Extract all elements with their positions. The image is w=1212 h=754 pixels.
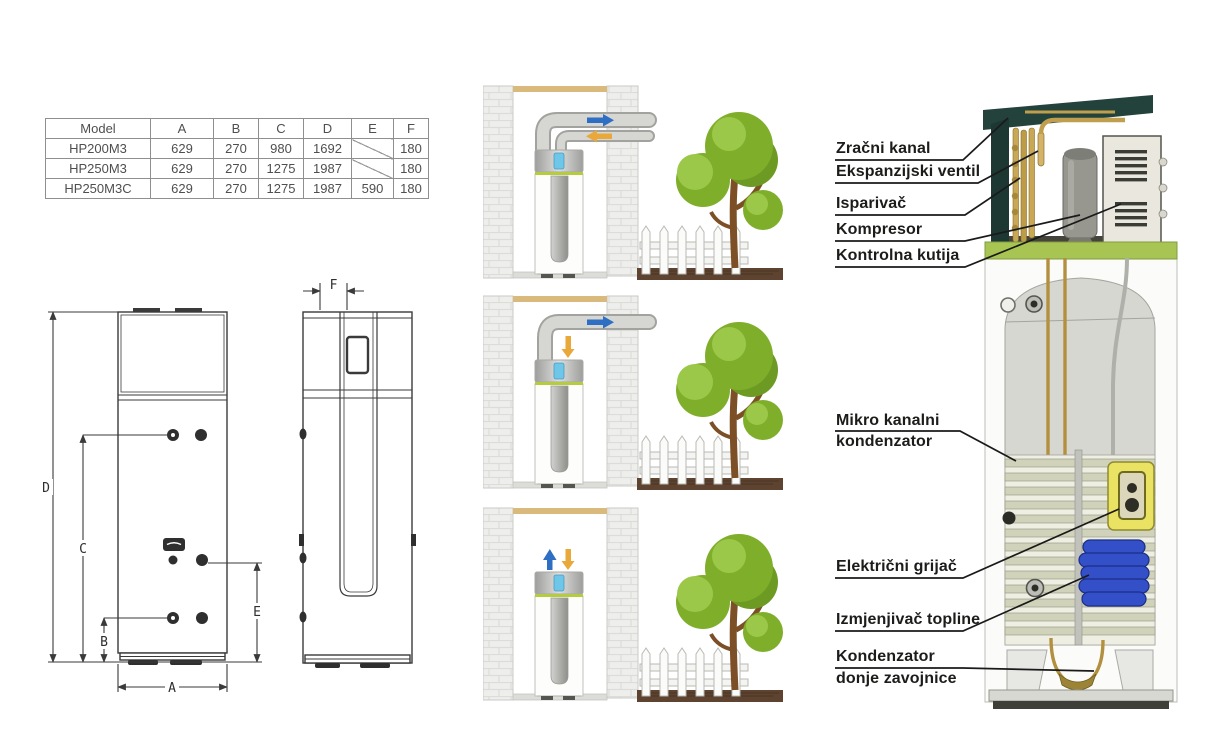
callout-label-heat-exchanger: Izmjenjivač topline — [836, 609, 980, 630]
callout-label-air-duct: Zračni kanal — [836, 138, 931, 159]
callout-leader-lines — [0, 0, 1212, 754]
document-page: Model A B C D E F HP200M3 629 270 980 16… — [0, 0, 1212, 754]
callout-label-micro-channel-condenser: Mikro kanalni kondenzator — [836, 410, 940, 452]
callout-label-electric-heater: Električni grijač — [836, 556, 957, 577]
callout-label-control-box: Kontrolna kutija — [836, 245, 959, 266]
callout-line: Mikro kanalni — [836, 410, 940, 431]
callout-label-evaporator: Isparivač — [836, 193, 906, 214]
callout-label-compressor: Kompresor — [836, 219, 922, 240]
callout-line: Kondenzator — [836, 646, 957, 667]
callout-line: kondenzator — [836, 431, 940, 452]
callout-label-expansion-valve: Ekspanzijski ventil — [836, 161, 980, 182]
callout-label-bottom-coil-condenser: Kondenzator donje zavojnice — [836, 646, 957, 689]
callout-line: donje zavojnice — [836, 668, 957, 689]
